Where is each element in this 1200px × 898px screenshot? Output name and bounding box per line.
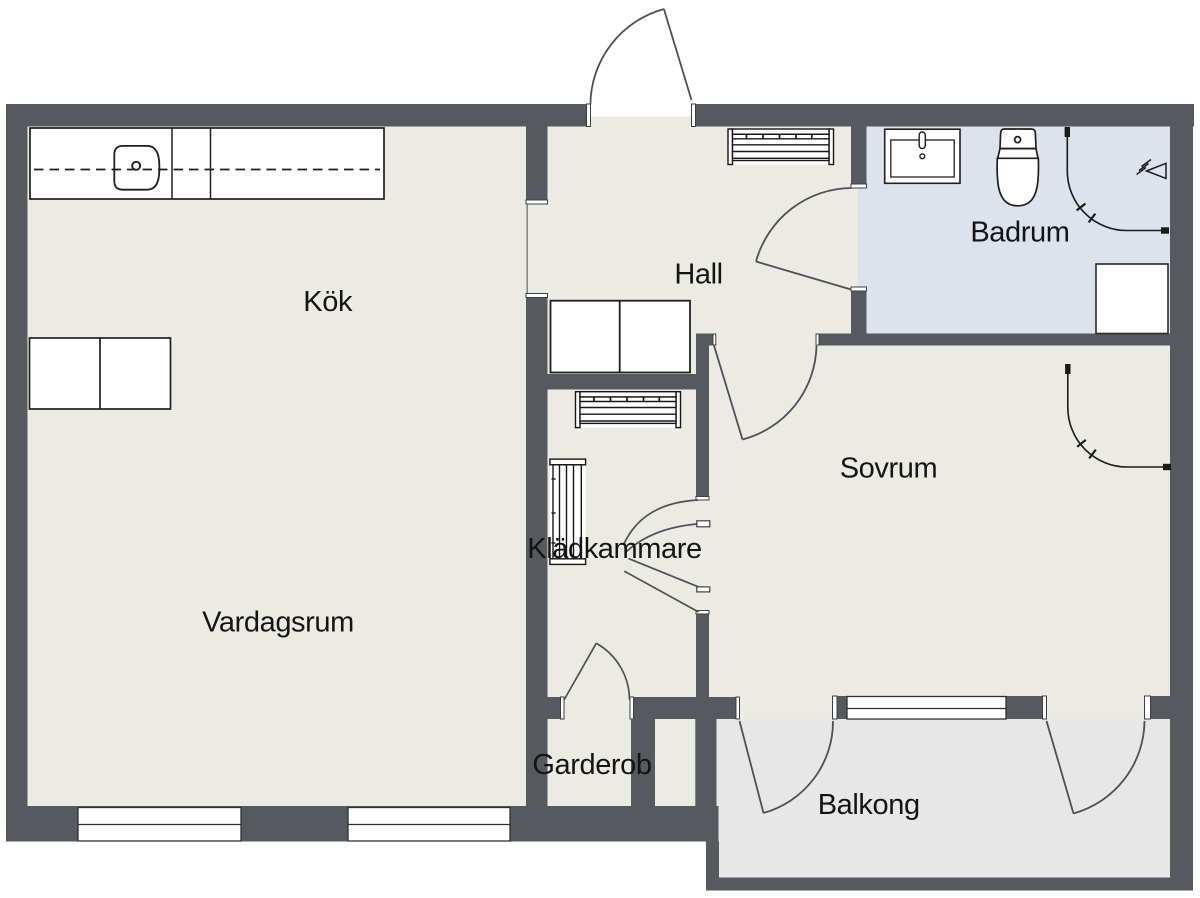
svg-text:Balkong: Balkong	[818, 789, 920, 821]
svg-text:Kök: Kök	[303, 286, 353, 318]
svg-text:Hall: Hall	[674, 259, 722, 291]
svg-text:Badrum: Badrum	[970, 216, 1069, 248]
svg-text:Klädkammare: Klädkammare	[527, 533, 702, 565]
svg-text:Garderob: Garderob	[532, 749, 651, 781]
svg-text:Vardagsrum: Vardagsrum	[202, 607, 354, 639]
svg-text:Sovrum: Sovrum	[840, 453, 938, 485]
